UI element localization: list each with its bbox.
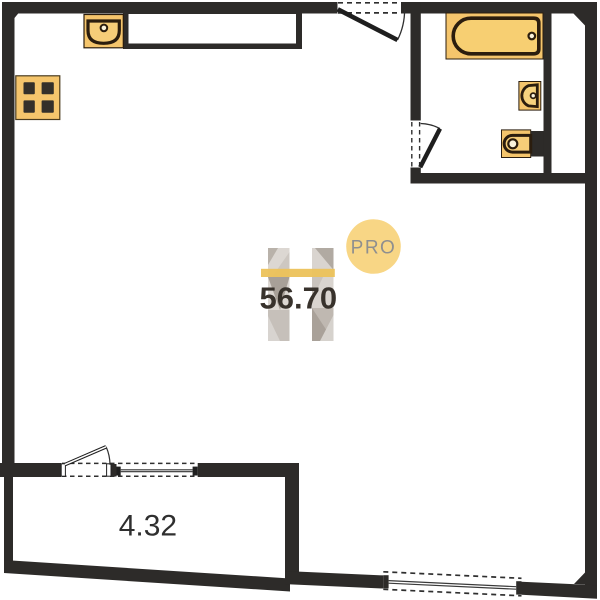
svg-text:PRO: PRO xyxy=(351,238,397,259)
svg-text:56.70: 56.70 xyxy=(260,281,338,316)
svg-text:4.32: 4.32 xyxy=(119,510,177,543)
